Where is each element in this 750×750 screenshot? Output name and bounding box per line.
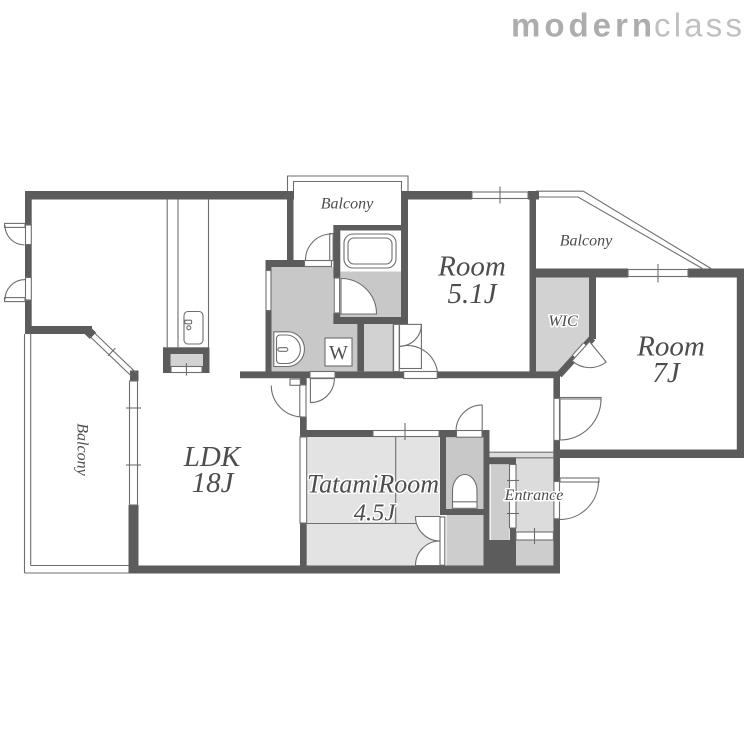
svg-text:7J: 7J	[652, 357, 681, 389]
svg-text:modern: modern	[511, 7, 656, 44]
svg-text:Entrance: Entrance	[504, 487, 564, 504]
svg-text:4.5J: 4.5J	[354, 500, 397, 527]
svg-text:18J: 18J	[192, 467, 235, 499]
svg-text:Balcony: Balcony	[560, 233, 613, 250]
svg-text:WIC: WIC	[548, 313, 578, 330]
svg-text:5.1J: 5.1J	[447, 278, 497, 310]
svg-text:W: W	[329, 342, 348, 364]
svg-text:Balcony: Balcony	[321, 196, 374, 213]
svg-text:Balcony: Balcony	[74, 423, 91, 476]
svg-text:class: class	[654, 7, 745, 44]
svg-text:TatamiRoom: TatamiRoom	[307, 470, 439, 499]
